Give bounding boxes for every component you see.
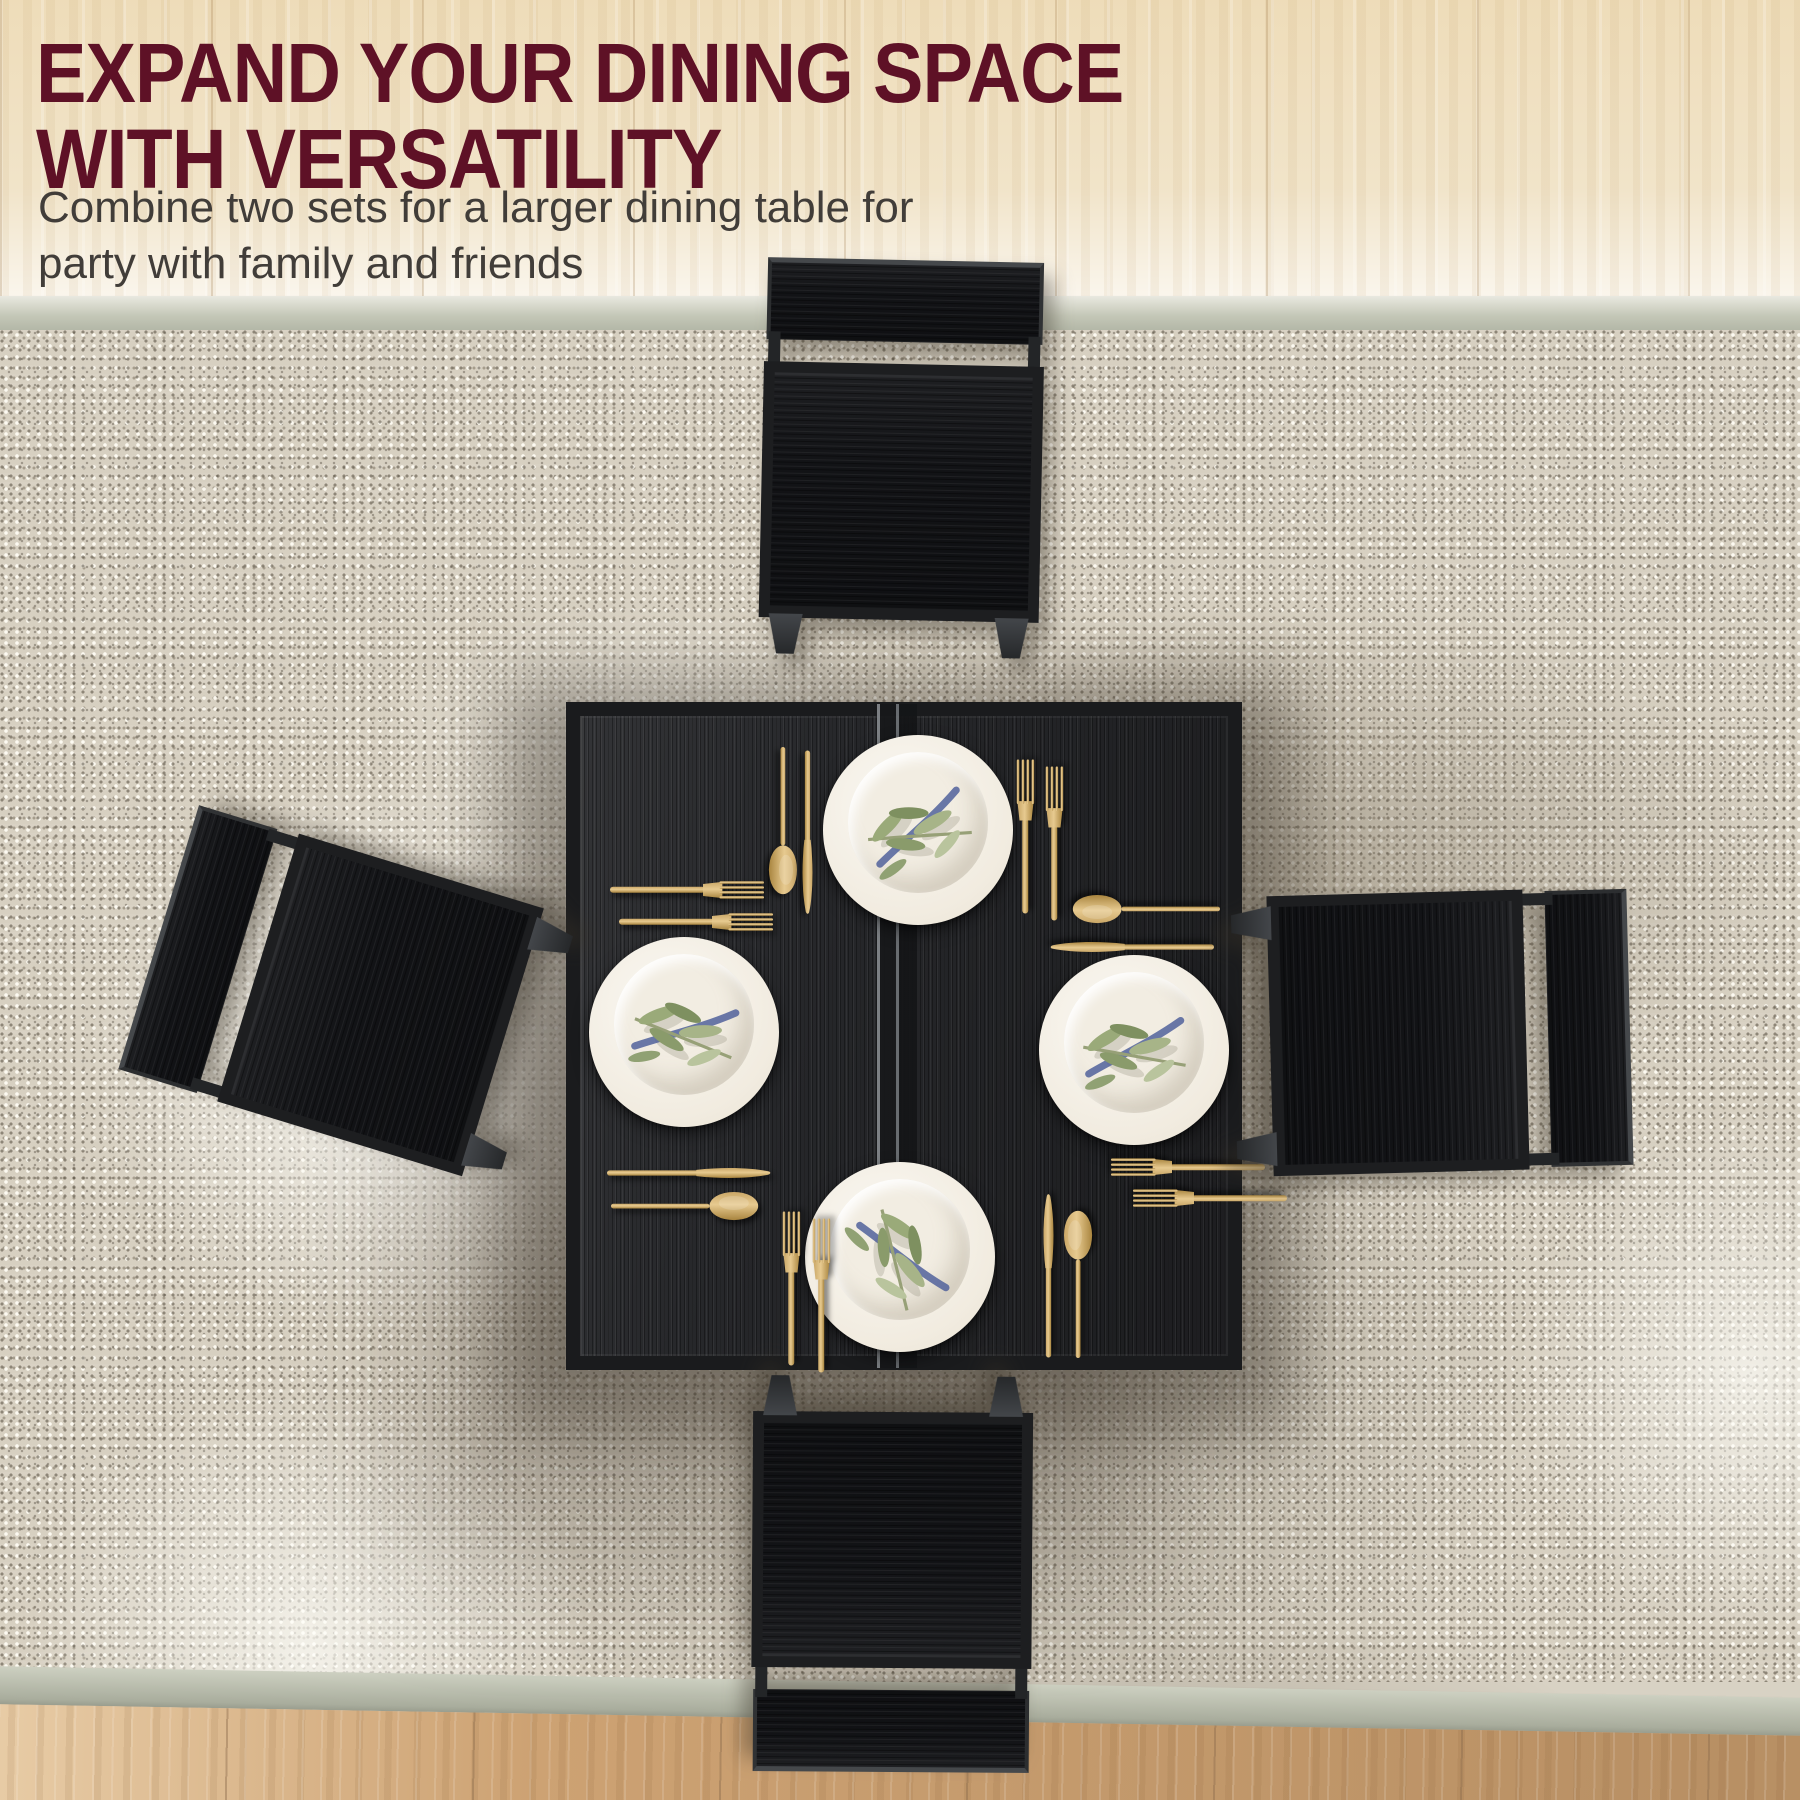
olive-sprig [615, 974, 754, 1091]
chair-bottom [751, 1375, 1034, 1773]
gold-fork [781, 1211, 803, 1366]
chair-leg [994, 618, 1029, 659]
dinner-plate [589, 937, 779, 1127]
chair-leg [768, 613, 803, 654]
title-line-1: EXPAND YOUR DINING SPACE [36, 30, 1123, 116]
chair-backrest [753, 1689, 1030, 1773]
olive-sprig [1068, 996, 1201, 1105]
gold-knife [607, 1163, 772, 1183]
chair-top [758, 257, 1046, 659]
subtitle-line-2: party with family and friends [38, 236, 914, 292]
gold-spoon [1062, 1208, 1094, 1358]
gold-knife [1039, 1193, 1059, 1358]
header: EXPAND YOUR DINING SPACEWITH VERSATILITY [36, 30, 1123, 202]
subtitle-line-1: Combine two sets for a larger dining tab… [38, 180, 914, 236]
gold-fork [610, 879, 765, 901]
chair-backrest [1544, 889, 1633, 1167]
chair-leg [989, 1377, 1023, 1417]
gold-knife [1049, 937, 1214, 957]
chair-seat [759, 361, 1044, 623]
gold-fork [1015, 759, 1037, 914]
chair-leg [1231, 906, 1272, 941]
dinner-plate [805, 1162, 995, 1352]
gold-fork [1132, 1187, 1287, 1209]
page-title: EXPAND YOUR DINING SPACEWITH VERSATILITY [36, 30, 1123, 202]
gold-fork [1044, 766, 1066, 921]
gold-fork [619, 911, 774, 933]
gold-spoon [611, 1190, 761, 1222]
gold-fork [811, 1218, 833, 1373]
gold-spoon [767, 747, 799, 897]
chair-right [1230, 887, 1633, 1177]
chair-leg [763, 1375, 797, 1415]
chair-leg [1237, 1132, 1278, 1167]
dinner-plate [1039, 955, 1229, 1145]
gold-spoon [1070, 893, 1220, 925]
chair-seat [751, 1411, 1033, 1669]
chair-seat [1266, 890, 1529, 1177]
dinner-plate [823, 735, 1013, 925]
product-image: EXPAND YOUR DINING SPACEWITH VERSATILITY… [0, 0, 1800, 1800]
gold-knife [798, 751, 818, 916]
subtitle: Combine two sets for a larger dining tab… [38, 180, 914, 292]
